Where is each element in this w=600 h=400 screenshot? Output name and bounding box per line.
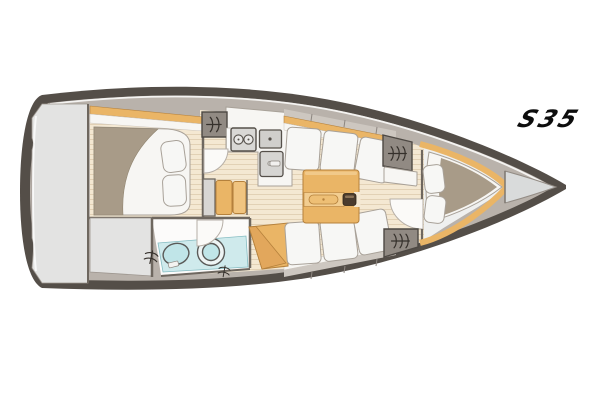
- table-top-edge: [305, 172, 357, 176]
- table-knob: [343, 194, 356, 206]
- boat-plan-drawing: S35: [0, 0, 600, 400]
- v-berth-pillow: [423, 195, 446, 224]
- stern-platform: [32, 104, 88, 283]
- sink-faucet: [270, 161, 280, 166]
- handle-dot: [322, 198, 324, 200]
- aft-berth-pillow: [160, 140, 187, 174]
- burner-dot: [238, 139, 240, 141]
- boat-plan-page: S35: [0, 0, 600, 400]
- head-compartment: [152, 218, 250, 277]
- step: [216, 181, 232, 215]
- burner-dot: [248, 139, 250, 141]
- settee-cushion: [320, 130, 359, 176]
- brand-logo: S35: [514, 105, 585, 133]
- aft-cabin: [88, 106, 203, 218]
- step: [233, 182, 246, 214]
- aft-berth-pillow: [162, 174, 187, 206]
- sink-drain: [268, 137, 271, 140]
- aft-storage: [90, 218, 152, 276]
- engine-box: [203, 179, 215, 216]
- companionway-steps: [203, 179, 247, 216]
- table-knob-highlight: [345, 196, 354, 199]
- settee-cushion: [285, 127, 322, 171]
- salon-table: [303, 170, 361, 223]
- settee-cushion: [285, 221, 322, 265]
- v-berth-pillow: [422, 164, 445, 194]
